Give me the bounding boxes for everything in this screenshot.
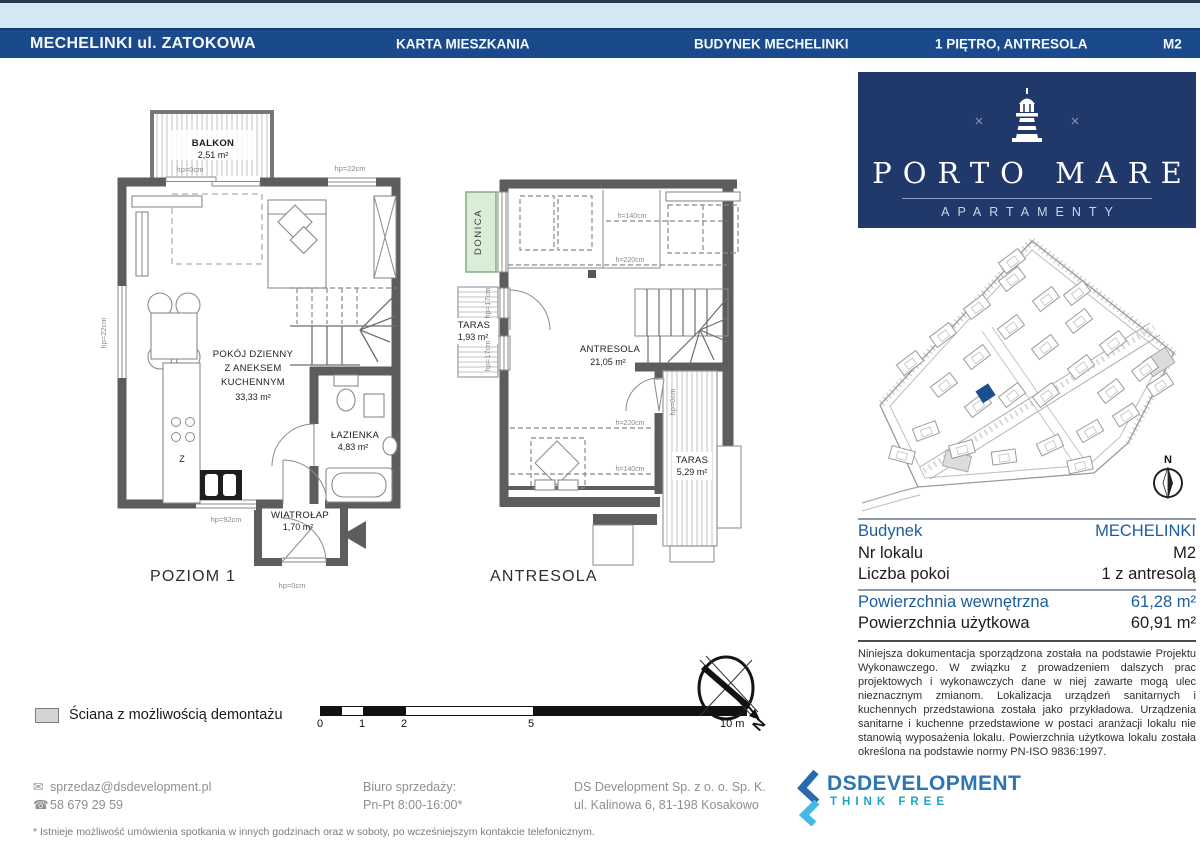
details-areas: Powierzchnia wewnętrzna 61,28 m² Powierz… (858, 589, 1196, 638)
detail-value: M2 (1173, 543, 1196, 565)
footer-office: Biuro sprzedaży: Pn-Pt 8:00-16:00* (363, 778, 462, 814)
building-name: BUDYNEK MECHELINKI (694, 37, 849, 52)
livingroom-label-2: Z ANEKSEM (224, 363, 281, 374)
detail-label: Budynek (858, 521, 922, 543)
detail-value: MECHELINKI (1095, 521, 1196, 543)
header-bar: MECHELINKI ul. ZATOKOWA KARTA MIESZKANIA… (0, 28, 1200, 58)
mezz-room-label: ANTRESOLA (580, 344, 641, 355)
scale-bar-track (320, 706, 747, 716)
detail-row-usable-area: Powierzchnia użytkowa 60,91 m² (858, 613, 1196, 635)
vestibule-label: WIATROŁAP (271, 510, 329, 521)
footer-email-row: ✉sprzedaz@dsdevelopment.pl (33, 778, 211, 796)
plan-compass-n: N (749, 715, 769, 734)
h140-bottom: h=140cm (616, 466, 645, 473)
map-compass: N (1154, 454, 1182, 499)
company-address: ul. Kalinowa 6, 81-198 Kosakowo (574, 796, 766, 814)
floorplan-antresola: DONICA h=140cm h=220cm h=220cm h=140cm (448, 160, 760, 600)
estate-buildings (889, 249, 1174, 474)
plan2-title: ANTRESOLA (490, 568, 598, 585)
scale-bar: 0 1 2 5 10 m (320, 706, 746, 732)
unit-details: Budynek MECHELINKI Nr lokalu M2 Liczba p… (858, 518, 1196, 638)
balkon-label: BALKON (192, 138, 234, 149)
scale-tick-0: 0 (317, 718, 323, 730)
ds-logo-wordmark: DSDEVELOPMENT (827, 772, 1021, 796)
hp-kitchen-window: hp=92cm (210, 515, 241, 524)
ds-logo-icon (797, 768, 823, 826)
plan1-title: POZIOM 1 (150, 568, 236, 585)
company-name: DS Development Sp. z o. o. Sp. K. (574, 778, 766, 796)
bathroom-label: ŁAZIENKA (331, 430, 380, 441)
furniture-living (132, 196, 202, 369)
detail-label: Nr lokalu (858, 543, 923, 565)
footer-phone-row: ☎58 679 29 59 (33, 796, 211, 814)
hp-taras1-a: hp=17cm (483, 287, 492, 318)
detail-label: Powierzchnia użytkowa (858, 613, 1030, 635)
h140-top: h=140cm (618, 213, 647, 220)
project-title: MECHELINKI ul. ZATOKOWA (30, 35, 256, 53)
ds-logo-tagline: THINK FREE (830, 796, 949, 808)
detail-label: Liczba pokoi (858, 564, 950, 586)
scale-tick-2: 2 (401, 718, 407, 730)
disclaimer-text: Niniejsza dokumentacja sporządzona zosta… (858, 640, 1196, 760)
office-label: Biuro sprzedaży: (363, 778, 462, 796)
taras2-label: TARAS (676, 455, 708, 466)
hp-taras1-b: hp=17cm (483, 340, 492, 371)
hp-balcony: hp=0cm (177, 165, 204, 174)
detail-value: 61,28 m² (1131, 592, 1196, 614)
hp-window-left: hp=22cm (99, 317, 108, 348)
taras1-label: TARAS (458, 320, 490, 331)
brand-subtitle: APARTAMENTY (858, 205, 1196, 219)
donica-label: DONICA (473, 209, 484, 255)
plan-compass: N (686, 648, 776, 743)
scale-tick-1: 1 (359, 718, 365, 730)
detail-row-building: Budynek MECHELINKI (858, 521, 1196, 543)
removable-wall-swatch (35, 708, 59, 723)
map-compass-n: N (1164, 454, 1172, 466)
livingroom-area: 33,33 m² (235, 392, 271, 402)
hp-window-top: hp=22cm (334, 164, 365, 173)
brand-divider (902, 198, 1152, 199)
top-strip (0, 3, 1200, 28)
h220-top: h=220cm (616, 257, 645, 264)
mezz-room-area: 21,05 m² (590, 357, 626, 367)
doc-type: KARTA MIESZKANIA (396, 37, 530, 52)
scale-tick-5: 5 (528, 718, 534, 730)
kitchen-mark: Z (179, 454, 185, 464)
details-main: Budynek MECHELINKI Nr lokalu M2 Liczba p… (858, 518, 1196, 589)
balkon-area: 2,51 m² (198, 150, 229, 160)
floor-label: 1 PIĘTRO, ANTRESOLA (935, 37, 1088, 52)
footer-phone: 58 679 29 59 (50, 798, 123, 812)
detail-row-internal-area: Powierzchnia wewnętrzna 61,28 m² (858, 592, 1196, 614)
livingroom-label-1: POKÓJ DZIENNY (213, 349, 294, 360)
legend: Ściana z możliwością demontażu (35, 707, 283, 723)
office-hours: Pn-Pt 8:00-16:00* (363, 796, 462, 814)
detail-label: Powierzchnia wewnętrzna (858, 592, 1049, 614)
bathroom-area: 4,83 m² (338, 442, 369, 452)
footer-company: DS Development Sp. z o. o. Sp. K. ul. Ka… (574, 778, 766, 814)
detail-value: 60,91 m² (1131, 613, 1196, 635)
livingroom-label-3: KUCHENNYM (221, 377, 285, 388)
brand-box: PORTO MARE APARTAMENTY (858, 72, 1196, 228)
legend-label: Ściana z możliwością demontażu (69, 707, 283, 723)
stairs (290, 288, 396, 365)
unit-number: M2 (1163, 37, 1182, 52)
scale-seg (321, 707, 342, 715)
taras2-area: 5,29 m² (677, 467, 708, 477)
site-map: N (862, 233, 1196, 520)
floorplan-poziom1: Z BALKON 2,51 m² hp=0cm hp=22cm hp=22cm … (90, 100, 420, 595)
brand-name: PORTO MARE (858, 156, 1196, 190)
h220-bottom: h=220cm (616, 420, 645, 427)
detail-value: 1 z antresolą (1102, 564, 1196, 586)
detail-row-unit: Nr lokalu M2 (858, 543, 1196, 565)
footer-contact: ✉sprzedaz@dsdevelopment.pl ☎58 679 29 59 (33, 778, 211, 814)
footer-email: sprzedaz@dsdevelopment.pl (50, 780, 211, 794)
hp-taras2: hp=0cm (668, 389, 677, 416)
apartment-card: MECHELINKI ul. ZATOKOWA KARTA MIESZKANIA… (0, 0, 1200, 853)
footer-note: * Istnieje możliwość umówienia spotkania… (33, 826, 595, 838)
mezz-stairs (635, 289, 728, 364)
vestibule-area: 1,70 m² (283, 522, 314, 532)
phone-icon: ☎ (33, 796, 50, 814)
furniture-sofa (268, 196, 396, 288)
lighthouse-icon (858, 82, 1196, 144)
donica-planter: DONICA (466, 192, 496, 272)
detail-row-rooms: Liczba pokoi 1 z antresolą (858, 564, 1196, 586)
email-icon: ✉ (33, 778, 50, 796)
hp-entry: hp=0cm (279, 581, 306, 590)
scale-seg (363, 707, 406, 715)
